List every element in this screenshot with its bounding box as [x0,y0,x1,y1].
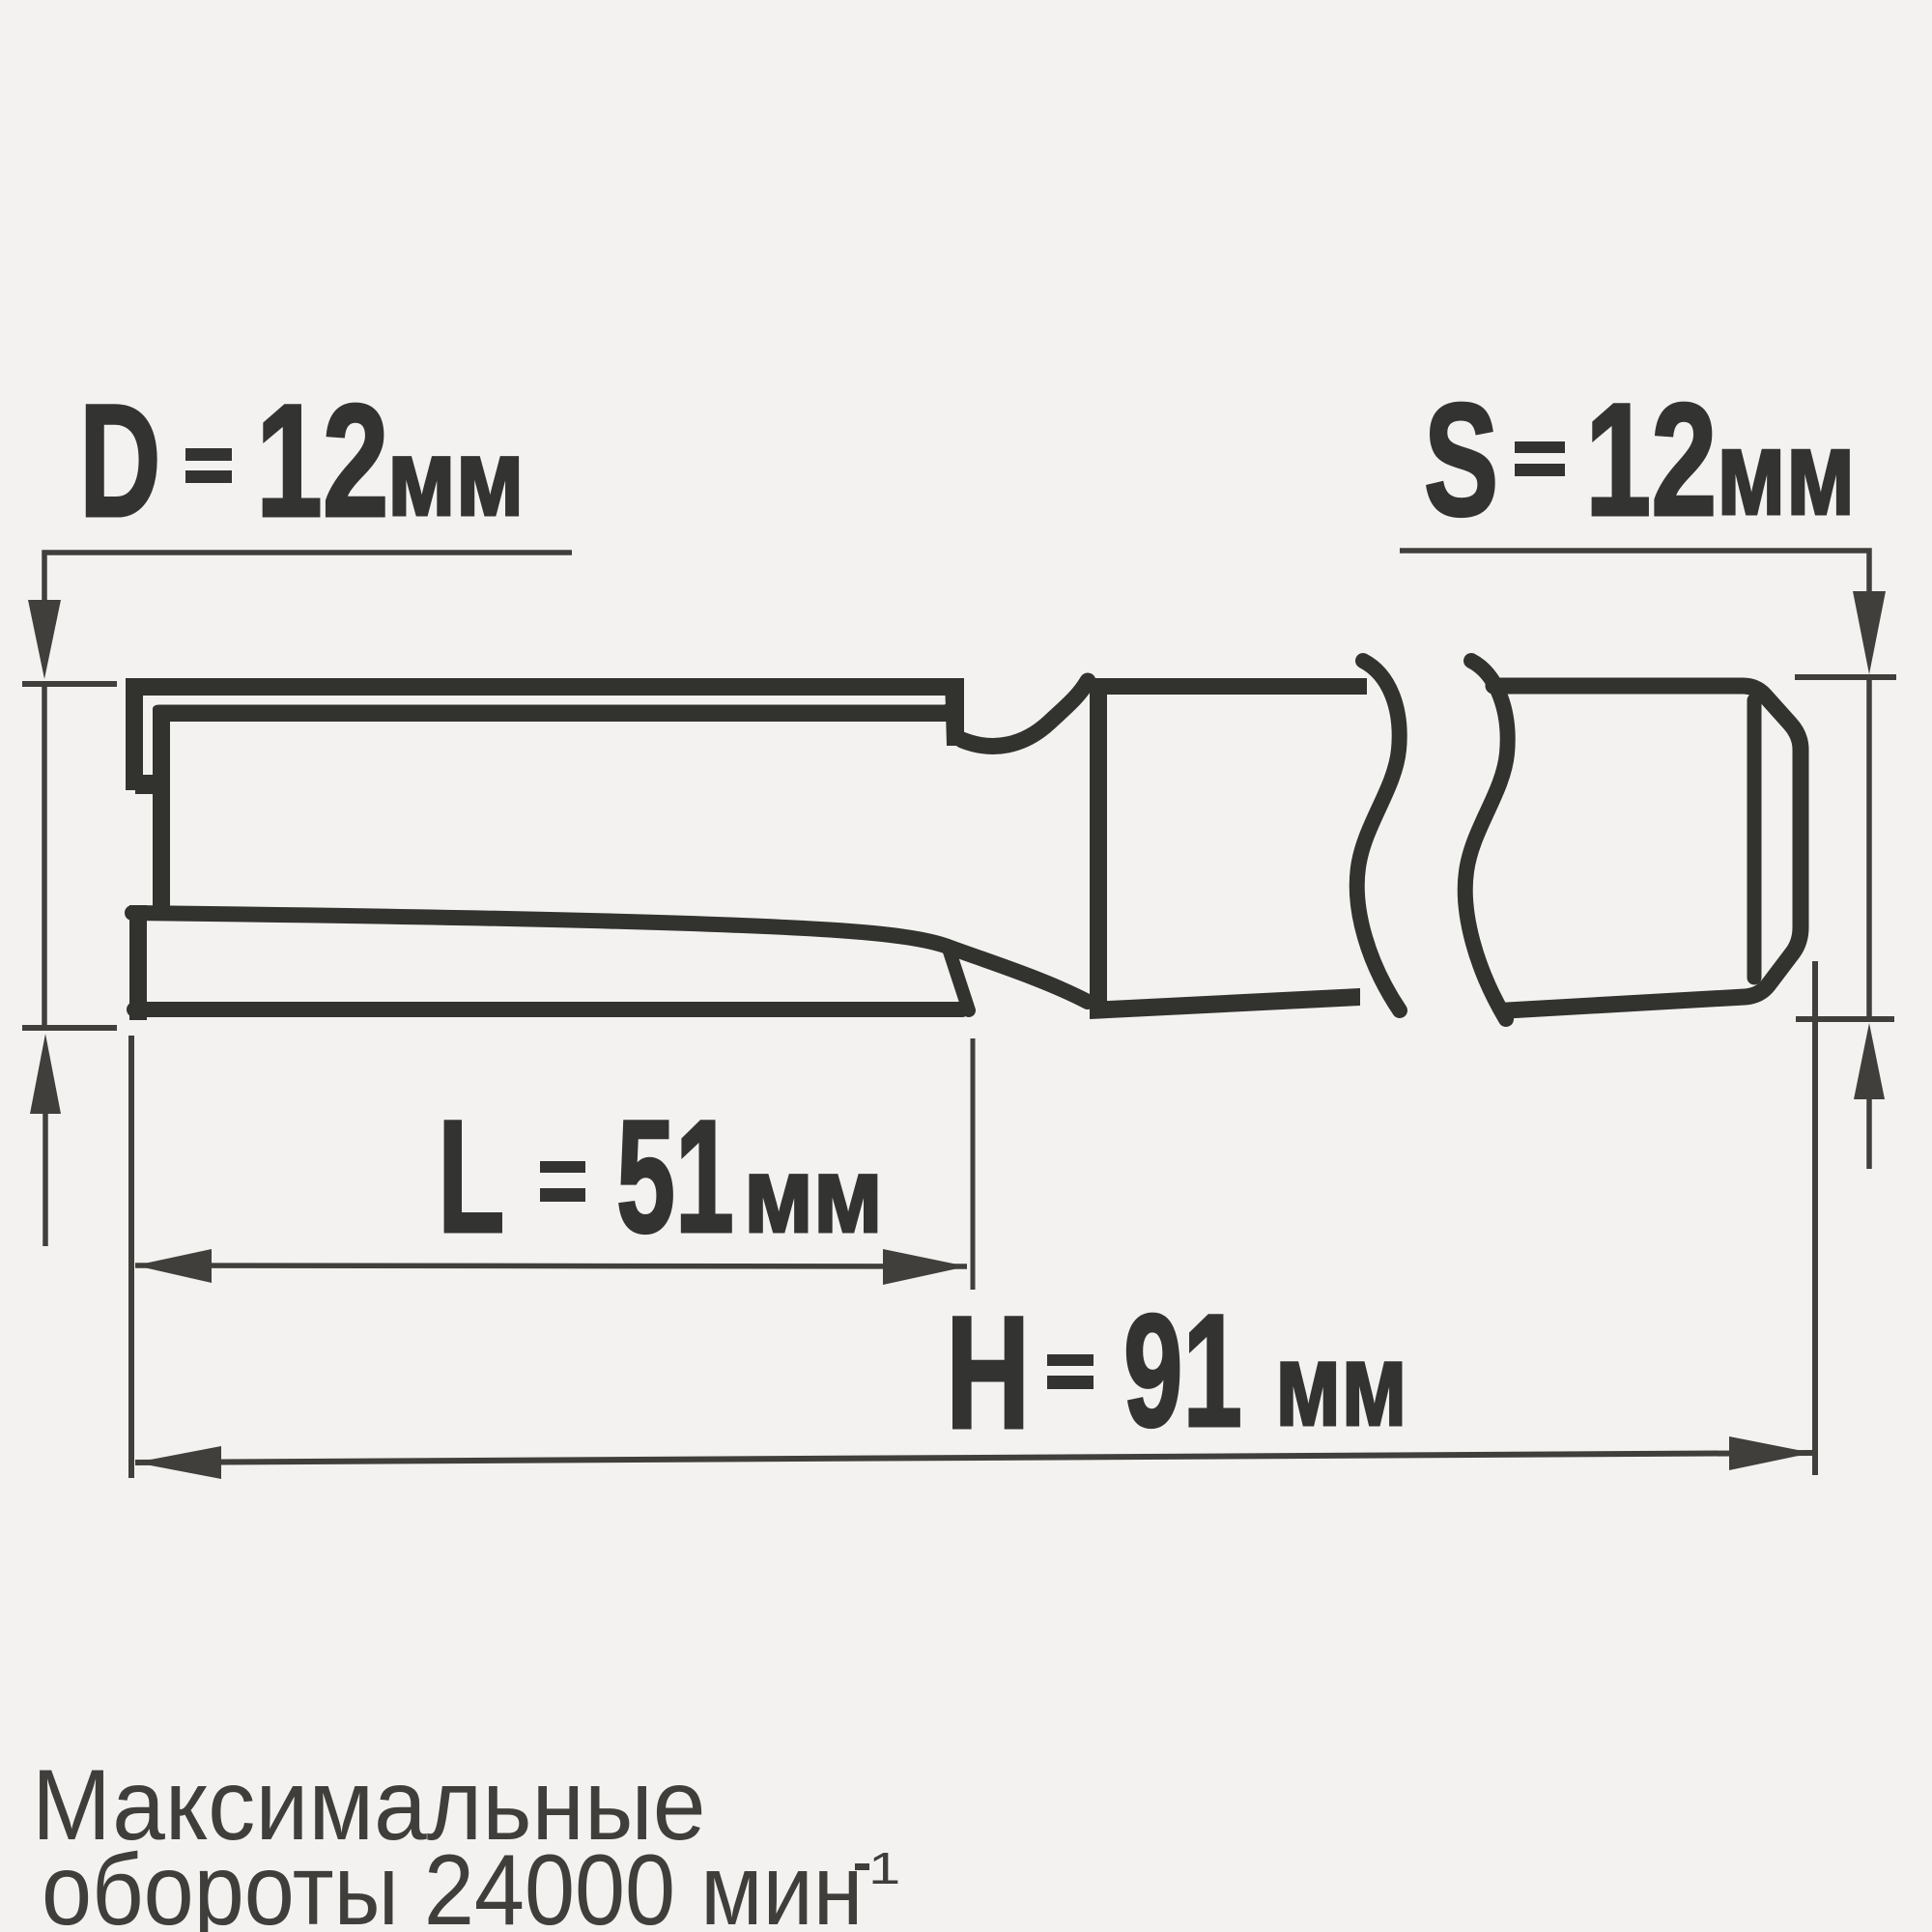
svg-text:D: D [79,372,161,551]
svg-text:51: 51 [616,1087,734,1265]
svg-text:12: 12 [1585,370,1717,549]
svg-text:S: S [1424,370,1498,550]
svg-text:мм: мм [387,418,524,539]
svg-text:мм: мм [1717,405,1855,539]
svg-text:12: 12 [256,371,389,551]
svg-text:мм: мм [744,1135,883,1254]
svg-text:мм: мм [1275,1319,1407,1450]
svg-text:1: 1 [868,1844,900,1893]
svg-text:Н: Н [946,1283,1030,1462]
svg-text:обороты 24000 мин: обороты 24000 мин [42,1833,863,1932]
svg-text:91: 91 [1123,1280,1242,1460]
svg-text:L: L [438,1088,504,1267]
